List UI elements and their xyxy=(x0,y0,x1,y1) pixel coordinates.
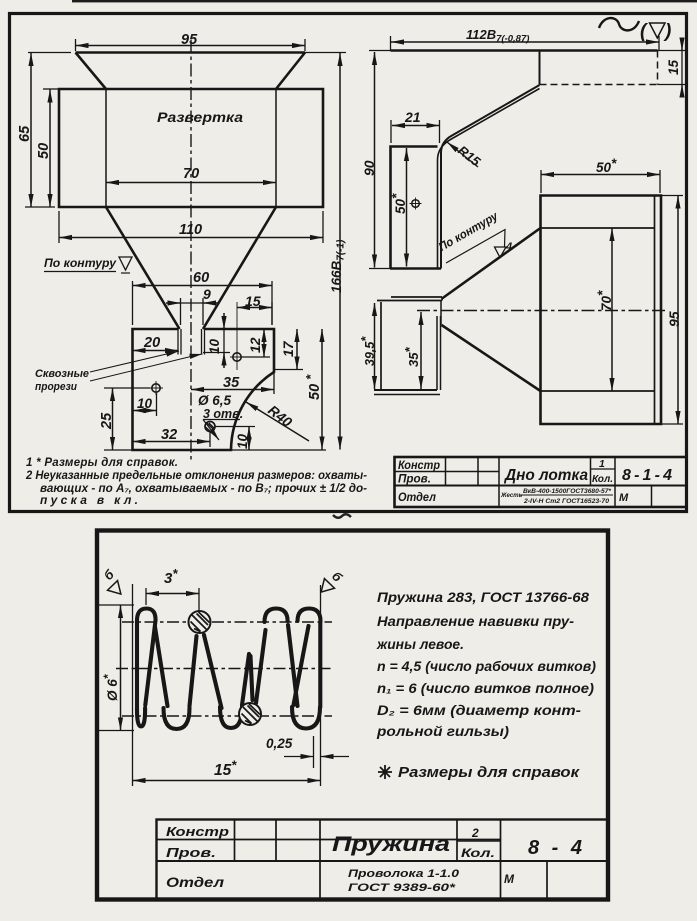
svg-text:35: 35 xyxy=(223,375,240,391)
svg-text:25: 25 xyxy=(99,412,115,430)
svg-text:Развертка: Развертка xyxy=(157,109,243,125)
svg-text:n₁ = 6 (число витков полное): n₁ = 6 (число витков полное) xyxy=(377,680,594,696)
svg-text:По контуру: По контуру xyxy=(44,258,117,270)
svg-text:Констр: Констр xyxy=(398,460,440,472)
svg-text:n = 4,5 (число рабочих витков): n = 4,5 (число рабочих витков) xyxy=(377,658,596,674)
svg-text:б: б xyxy=(329,568,346,585)
svg-text:32: 32 xyxy=(161,427,177,443)
svg-text:0,25: 0,25 xyxy=(266,736,293,751)
svg-text:Проволока 1-1.0: Проволока 1-1.0 xyxy=(348,868,460,880)
svg-text:9: 9 xyxy=(203,286,211,302)
svg-text:95: 95 xyxy=(181,32,198,48)
svg-text:Констр: Констр xyxy=(166,824,229,839)
svg-text:2 Неуказанные предельные откл: 2 Неуказанные предельные отклонения разм… xyxy=(25,470,367,482)
svg-text:Пружина: Пружина xyxy=(332,833,450,856)
svg-text:95: 95 xyxy=(666,311,682,327)
svg-text:Отдел: Отдел xyxy=(398,492,436,504)
svg-text:жины левое.: жины левое. xyxy=(376,636,464,652)
svg-text:65: 65 xyxy=(17,125,33,142)
svg-text:21: 21 xyxy=(404,109,421,125)
svg-text:R15: R15 xyxy=(455,143,484,170)
svg-text:70*: 70* xyxy=(595,290,614,311)
svg-text:50*: 50* xyxy=(389,193,408,214)
svg-text:15: 15 xyxy=(666,59,681,75)
svg-text:Сквозные: Сквозные xyxy=(35,368,89,380)
svg-text:10: 10 xyxy=(137,396,153,411)
svg-text:10: 10 xyxy=(207,338,222,354)
svg-text:ГОСТ 9389-60*: ГОСТ 9389-60* xyxy=(348,882,456,894)
svg-text:пуска в кл.: пуска в кл. xyxy=(40,493,138,507)
svg-text:М: М xyxy=(504,872,515,886)
svg-text:М: М xyxy=(619,492,629,504)
svg-text:3 отв.: 3 отв. xyxy=(203,407,243,421)
svg-text:): ) xyxy=(663,21,671,42)
svg-text:1 * Размеры для справок.: 1 * Размеры для справок. xyxy=(26,457,178,469)
svg-text:Направление навивки пру-: Направление навивки пру- xyxy=(377,613,574,629)
svg-text:Кол.: Кол. xyxy=(592,473,613,485)
svg-text:2: 2 xyxy=(471,826,479,840)
svg-text:15: 15 xyxy=(245,293,261,309)
svg-text:D₂ = 6мм (диаметр конт-: D₂ = 6мм (диаметр конт- xyxy=(377,702,581,718)
svg-text:Ø 6,5: Ø 6,5 xyxy=(198,393,232,408)
svg-text:17: 17 xyxy=(280,340,296,357)
svg-text:прорези: прорези xyxy=(35,381,77,393)
svg-text:50 *: 50 * xyxy=(303,374,323,400)
svg-text:112В7(-0,87): 112В7(-0,87) xyxy=(466,27,529,45)
svg-text:10: 10 xyxy=(235,433,250,449)
svg-text:1: 1 xyxy=(599,458,605,470)
svg-text:По контуру: По контуру xyxy=(436,208,501,254)
svg-text:166В7(-1): 166В7(-1) xyxy=(329,239,347,293)
svg-text:Дно лотка: Дно лотка xyxy=(503,467,588,484)
svg-text:20: 20 xyxy=(143,335,160,351)
svg-text:4: 4 xyxy=(505,241,512,253)
svg-text:50*: 50* xyxy=(596,156,617,175)
svg-text:8-1-4: 8-1-4 xyxy=(622,467,672,484)
svg-text:Отдел: Отдел xyxy=(166,875,225,890)
svg-text:ВкВ-400-1500ГОСТ3680-57*: ВкВ-400-1500ГОСТ3680-57* xyxy=(523,488,611,495)
svg-text:2-IV-Н Ст2 ГОСТ16523-70: 2-IV-Н Ст2 ГОСТ16523-70 xyxy=(523,498,609,505)
svg-text:вающих - по А₇, охватываемых -: вающих - по А₇, охватываемых - по В₇; пр… xyxy=(40,483,367,495)
svg-text:б: б xyxy=(101,566,118,583)
svg-text:Ø 6*: Ø 6* xyxy=(101,673,120,701)
svg-text:(: ( xyxy=(640,21,649,42)
svg-text:50: 50 xyxy=(36,143,52,159)
svg-text:90: 90 xyxy=(361,160,377,176)
svg-text:3*: 3* xyxy=(164,566,178,587)
svg-text:Пружина 283, ГОСТ 13766-68: Пружина 283, ГОСТ 13766-68 xyxy=(377,589,589,605)
svg-text:35*: 35* xyxy=(402,347,421,367)
svg-text:8-4: 8-4 xyxy=(528,837,582,859)
svg-text:Размеры для справок: Размеры для справок xyxy=(398,765,580,781)
svg-text:110: 110 xyxy=(179,222,202,238)
svg-text:рольной гильзы): рольной гильзы) xyxy=(376,723,509,739)
svg-text:60: 60 xyxy=(193,270,209,286)
svg-text:12: 12 xyxy=(247,337,263,353)
svg-text:Пров.: Пров. xyxy=(166,845,216,860)
svg-text:R40: R40 xyxy=(265,402,295,431)
svg-text:Кол.: Кол. xyxy=(461,846,495,860)
svg-text:15*: 15* xyxy=(214,758,237,780)
svg-text:70: 70 xyxy=(183,166,199,182)
svg-text:Жесть: Жесть xyxy=(500,493,523,499)
svg-text:Пров.: Пров. xyxy=(398,474,431,486)
